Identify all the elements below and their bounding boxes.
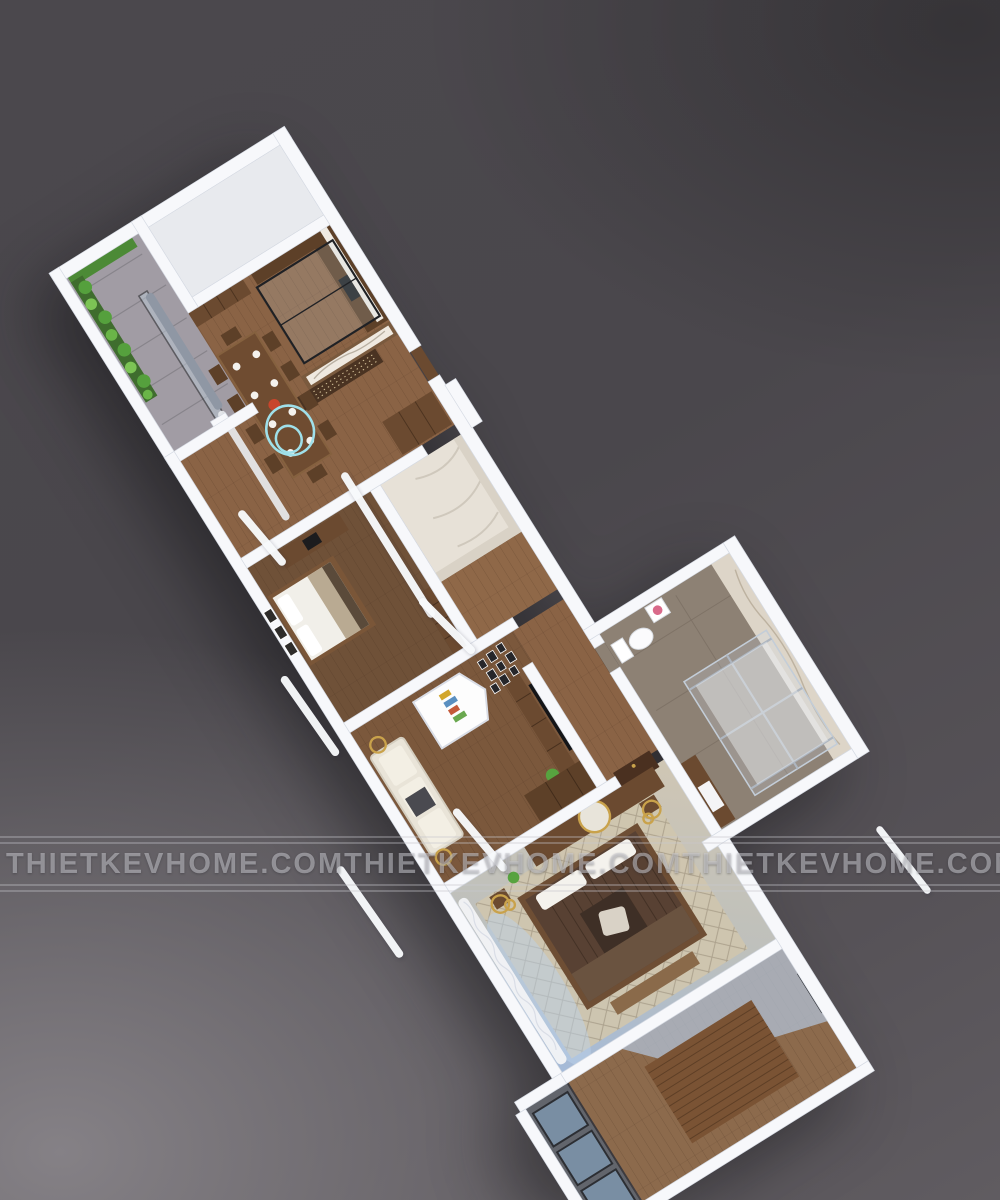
watermark-line (0, 884, 1000, 886)
watermark-line (0, 890, 1000, 892)
watermark-row: THIETKEVHOME.COM THIETKEVHOME.COM THIETK… (0, 846, 1000, 882)
watermark-text: THIETKEVHOME.COM (682, 848, 1000, 881)
watermark-line (0, 842, 1000, 844)
render-stage: THIETKEVHOME.COM THIETKEVHOME.COM THIETK… (0, 0, 1000, 1200)
watermark-text: THIETKEVHOME.COM (6, 848, 344, 881)
watermark-band: THIETKEVHOME.COM THIETKEVHOME.COM THIETK… (0, 834, 1000, 896)
watermark-line (0, 836, 1000, 838)
floor-plan-render (0, 0, 1000, 1200)
watermark-text: THIETKEVHOME.COM (344, 848, 682, 881)
